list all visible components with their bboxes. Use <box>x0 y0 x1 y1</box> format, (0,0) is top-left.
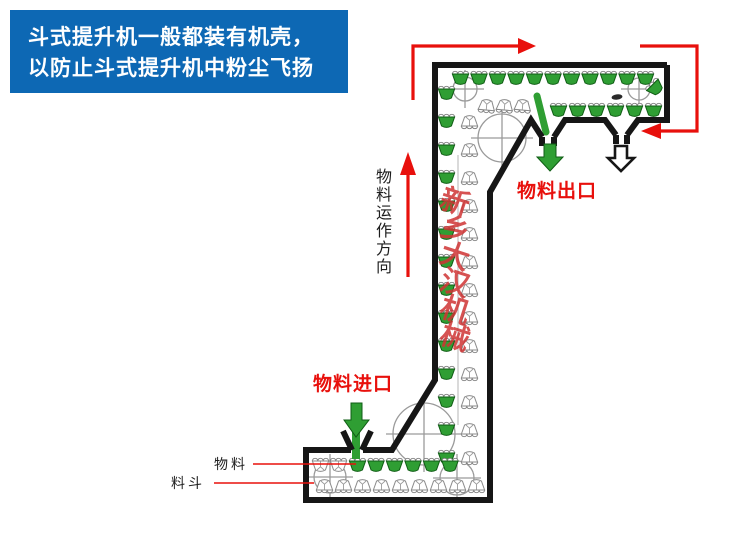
bucket-empty-icon <box>496 99 513 113</box>
bucket-full-icon <box>368 458 384 471</box>
bucket-full-icon <box>588 103 604 116</box>
bucket-full-icon <box>349 458 365 471</box>
bucket-empty-icon <box>373 480 389 493</box>
bucket-empty-icon <box>468 480 484 493</box>
bucket-elevator-diagram-page: 斗式提升机一般都装有机壳， 以防止斗式提升机中粉尘飞扬 物料出口 物料进口 物料… <box>0 0 753 535</box>
bucket-full-icon <box>438 114 454 127</box>
bucket-full-icon <box>550 103 566 116</box>
bucket-full-icon <box>386 458 402 471</box>
bucket-empty-icon <box>461 172 477 185</box>
bucket-full-icon <box>526 71 542 84</box>
casing-outline <box>306 65 667 500</box>
outlet-down-arrow-icon <box>537 144 563 171</box>
bucket-label: 料斗 <box>171 473 205 493</box>
bucket-empty-icon <box>461 116 477 129</box>
bucket-empty-icon <box>411 480 427 493</box>
bucket-full-icon <box>405 458 421 471</box>
bucket-full-icon <box>600 71 616 84</box>
bucket-full-icon <box>626 103 642 116</box>
air-outlet-arrow-icon <box>608 146 634 171</box>
bucket-empty-icon <box>335 480 351 493</box>
bucket-full-icon <box>645 103 661 116</box>
bucket-empty-icon <box>449 480 465 493</box>
outlet-label: 物料出口 <box>517 176 597 203</box>
material-label: 物料 <box>214 454 248 474</box>
bucket-full-icon <box>563 71 579 84</box>
bucket-full-icon <box>569 103 585 116</box>
bucket-empty-icon <box>354 480 370 493</box>
bucket-empty-icon <box>478 99 495 113</box>
watermark: 新 乡 大 汉 机 械 <box>440 190 469 352</box>
info-banner: 斗式提升机一般都装有机壳， 以防止斗式提升机中粉尘飞扬 <box>10 10 348 93</box>
inlet-label: 物料进口 <box>313 369 393 396</box>
bucket-empty-icon <box>461 424 477 437</box>
watermark-char: 械 <box>437 321 473 356</box>
bucket-full-icon <box>508 71 524 84</box>
flow-direction-label: 物料运作方向 <box>369 168 393 286</box>
bucket-full-icon <box>438 170 454 183</box>
bucket-empty-icon <box>312 458 328 471</box>
bucket-full-icon <box>438 142 454 155</box>
bucket-full-icon <box>442 458 458 471</box>
bucket-full-icon <box>438 86 454 99</box>
bucket-full-icon <box>619 71 635 84</box>
bucket-full-icon <box>489 71 505 84</box>
bucket-empty-icon <box>392 480 408 493</box>
inlet-down-arrow-icon <box>344 403 369 437</box>
bucket-full-icon <box>582 71 598 84</box>
banner-line1: 斗式提升机一般都装有机壳， <box>28 22 348 53</box>
bucket-empty-icon <box>461 396 477 409</box>
belt-fastener-icon <box>611 94 623 101</box>
bucket-empty-icon <box>461 368 477 381</box>
bucket-empty-icon <box>514 99 531 113</box>
bucket-empty-icon <box>461 452 477 465</box>
bucket-empty-icon <box>461 144 477 157</box>
banner-line2: 以防止斗式提升机中粉尘飞扬 <box>28 53 348 84</box>
bucket-full-icon <box>423 458 439 471</box>
bucket-empty-icon <box>430 480 446 493</box>
bucket-full-icon <box>545 71 561 84</box>
bucket-full-icon <box>438 366 454 379</box>
bucket-full-icon <box>607 103 623 116</box>
bucket-full-icon <box>471 71 487 84</box>
bucket-full-icon <box>438 394 454 407</box>
